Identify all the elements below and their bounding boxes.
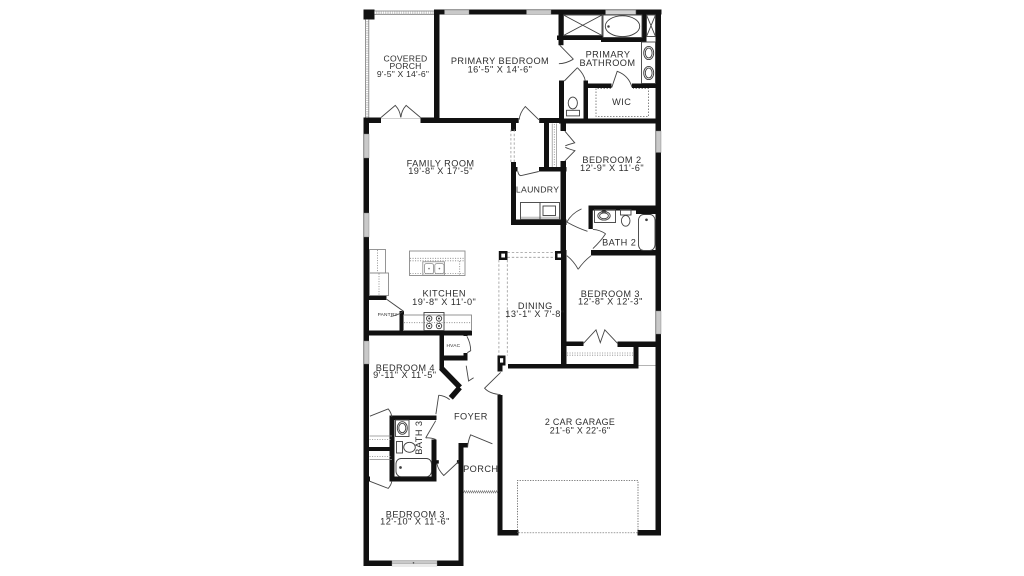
- svg-text:FOYER: FOYER: [454, 412, 488, 422]
- svg-text:9'-5" X 14'-6": 9'-5" X 14'-6": [377, 69, 429, 79]
- svg-text:19'-8" X 11'-0": 19'-8" X 11'-0": [412, 297, 476, 307]
- svg-text:BATH 2: BATH 2: [602, 238, 636, 248]
- svg-text:12'-10" X 11'-6": 12'-10" X 11'-6": [380, 517, 450, 527]
- svg-text:16'-5" X 14'-6": 16'-5" X 14'-6": [468, 64, 533, 74]
- svg-text:12'-9" X 11'-6": 12'-9" X 11'-6": [580, 163, 644, 173]
- svg-text:PORCH: PORCH: [463, 464, 498, 474]
- svg-text:LAUNDRY: LAUNDRY: [516, 185, 559, 195]
- svg-text:BATHROOM: BATHROOM: [579, 58, 635, 68]
- svg-text:WIC: WIC: [612, 97, 631, 107]
- svg-text:HVAC: HVAC: [447, 343, 461, 349]
- svg-text:BATH 3: BATH 3: [414, 421, 424, 455]
- svg-text:21'-6" X 22'-6": 21'-6" X 22'-6": [550, 426, 611, 436]
- svg-text:9'-11" X 11'-5": 9'-11" X 11'-5": [373, 370, 436, 380]
- svg-text:13'-1" X 7'-8": 13'-1" X 7'-8": [505, 309, 564, 319]
- svg-text:12'-8" X 12'-3": 12'-8" X 12'-3": [578, 297, 643, 307]
- svg-text:PANTRY: PANTRY: [378, 312, 399, 318]
- svg-text:19'-8" X 17'-5": 19'-8" X 17'-5": [408, 166, 473, 176]
